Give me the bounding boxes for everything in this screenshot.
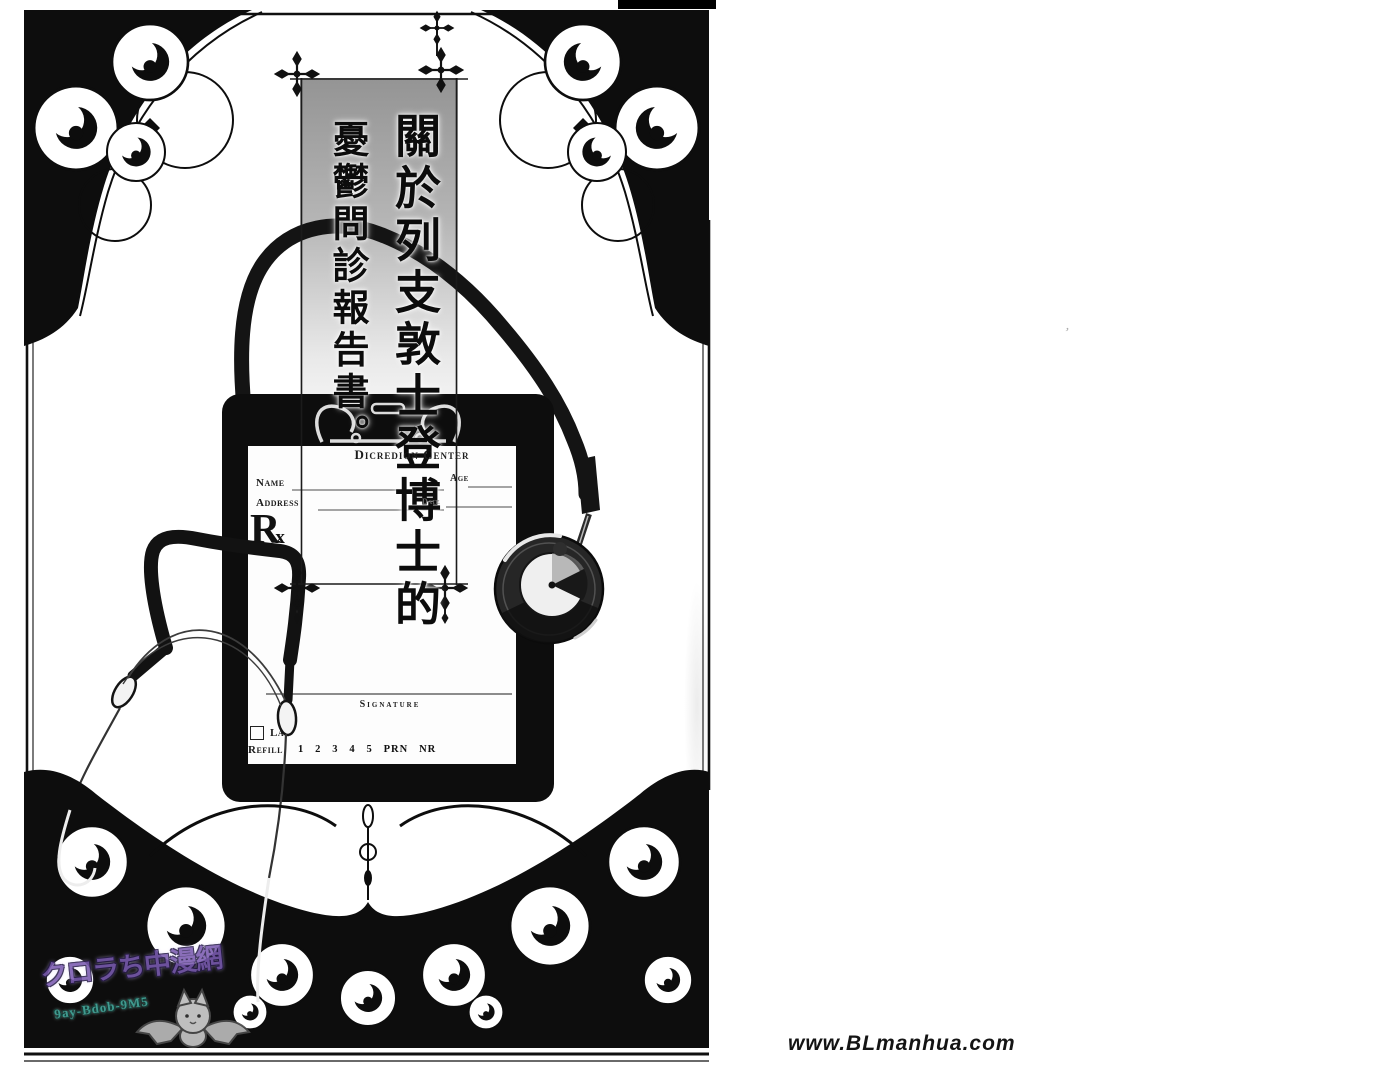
date-label: Date [422,497,440,506]
rx-symbol-icon: Rx [250,506,280,554]
refill-options: 1 2 3 4 5 PRN NR [298,744,436,755]
corner-ornament-top-right [471,10,709,346]
age-label: Age [450,473,469,484]
refill-label: Refill [248,744,283,756]
page-artwork [0,0,1400,1074]
title-column-left: 憂鬱問診報告書。 [328,120,365,456]
lab-checkbox [250,726,264,740]
bottom-ornament-band [24,770,709,1061]
lab-label: La [270,727,284,739]
name-label: Name [256,477,285,489]
signature-label: Signature [330,699,450,710]
clinic-header: Dicredion Center [322,447,502,463]
scanned-manga-page: 關於列支敦士登博士的 憂鬱問診報告書。 Dicredion Center Nam… [0,0,1400,1074]
corner-ornament-top-left [24,10,262,346]
scan-edge-artifact [618,0,716,9]
site-credit: www.BLmanhua.com [788,1032,1016,1056]
title-column-right: 關於列支敦士登博士的 [391,112,437,632]
